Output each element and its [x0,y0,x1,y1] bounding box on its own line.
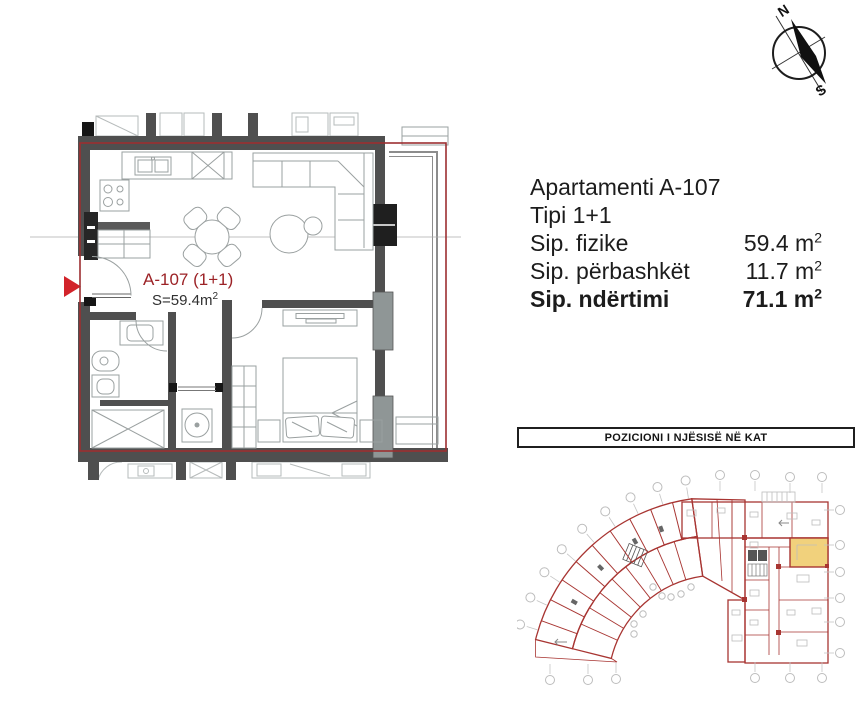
bedroom [232,308,382,448]
area-row-fizike: Sip. fizike 59.4 m2 [530,229,822,257]
building-position-map [517,450,857,715]
stove-icon [100,180,129,211]
laundry [178,387,216,442]
fridge-icon [192,152,224,179]
area-value: 59.4 m2 [744,229,822,257]
apartment-info: Apartamenti A-107 Tipi 1+1 Sip. fizike 5… [530,173,822,313]
area-value: 71.1 m2 [743,285,822,313]
area-value: 11.7 m2 [746,257,822,285]
compass-rose: N S [760,0,845,105]
shower-icon [92,410,164,448]
apartment-title: Apartamenti A-107 [530,173,822,201]
apartment-floor-plan: A-107 (1+1) S=59.4m2 [0,100,480,500]
entrance-arrow-icon [64,276,81,297]
bathroom [92,320,167,448]
unit-area-label: S=59.4m2 [152,291,218,309]
highlighted-unit [790,538,828,567]
area-row-perbashket: Sip. përbashkët 11.7 m2 [530,257,822,285]
area-row-ndertimi: Sip. ndërtimi 71.1 m2 [530,285,822,313]
coffee-table [270,215,322,253]
apartment-type: Tipi 1+1 [530,201,822,229]
area-label: Sip. fizike [530,229,628,257]
compass-south-label: S [812,81,829,100]
balcony [389,127,448,454]
wardrobe [232,366,256,448]
neighbour-unit-below [88,462,370,480]
entrance [64,257,131,298]
position-panel-title: POZICIONI I NJËSISË NË KAT [517,427,855,448]
floor-plan-sheet: A-107 (1+1) S=59.4m2 N S Apartamenti A-1… [0,0,857,717]
neighbour-unit-above [82,113,358,137]
area-label: Sip. ndërtimi [530,285,669,313]
area-label: Sip. përbashkët [530,257,690,285]
unit-label: A-107 (1+1) [143,270,233,289]
junction-block [692,499,745,600]
bed [283,358,357,442]
